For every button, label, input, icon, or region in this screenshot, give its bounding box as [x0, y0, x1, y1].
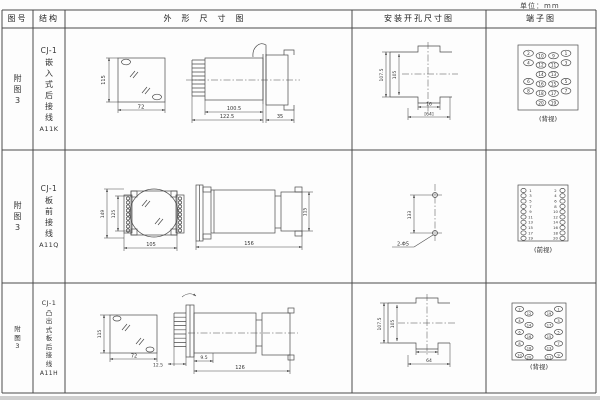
dim-side-height: 115	[303, 208, 309, 217]
dim-cutout-inner-height: 105	[390, 320, 396, 329]
dim-front-outer-height: 149	[100, 210, 106, 219]
terminal-number: 3	[557, 319, 559, 323]
terminal-number: 18	[538, 91, 544, 96]
terminal-number: 7	[565, 89, 568, 94]
terminal-number: 6	[527, 79, 530, 84]
terminal-number: 18	[553, 230, 558, 235]
terminal-number: 6	[518, 330, 521, 334]
terminal-number: 8	[527, 89, 530, 94]
row1-model: CJ-1	[41, 46, 58, 55]
terminal-number: 17	[551, 91, 557, 96]
dim-body-length: 100.5	[227, 106, 241, 112]
terminal-pin	[560, 215, 565, 219]
row2-terminal-view-label: (前视)	[534, 245, 552, 254]
header-install-dims: 安装开孔尺寸图	[352, 11, 486, 27]
row1-terminal-diagram: 2109141211314136161558181772019 (背视)	[518, 45, 578, 123]
terminal-pin	[560, 226, 565, 230]
terminal-number: 9	[529, 209, 532, 214]
dim-front-inner-height: 125	[111, 210, 117, 219]
terminal-number: 11	[528, 214, 533, 219]
terminal-pin	[560, 210, 565, 214]
dim-front-height: 115	[101, 75, 107, 85]
row2-model: CJ-1	[41, 184, 58, 193]
terminal-pin	[521, 231, 526, 235]
terminal-number: 17	[528, 230, 533, 235]
terminal-number: 2	[527, 51, 530, 56]
row3-outline-side-view: 12.5 9.5 126	[153, 294, 298, 374]
dim-cutout-inner-height: 105	[392, 71, 398, 80]
terminal-number: 10	[553, 209, 558, 214]
terminal-number: 15	[547, 335, 552, 339]
header-fig-no: 图号	[2, 11, 33, 27]
terminal-number: 7	[557, 342, 559, 346]
terminal-number: 2	[554, 188, 557, 193]
dim-side-length: 156	[244, 241, 254, 247]
dim-front-width: 72	[131, 354, 137, 360]
row1-outline-side-view: 100.5 122.5 35	[186, 44, 300, 123]
row1-code: A11K	[40, 125, 59, 133]
terminal-number: 17	[547, 323, 552, 327]
dim-cutout-outer-height: 107.5	[379, 68, 385, 81]
row3-structure-type: 凸出式板后接线	[46, 309, 53, 369]
terminal-number: 19	[547, 312, 552, 316]
row1-terminal-view-label: (背视)	[539, 114, 557, 123]
row1-fig-no-cell: 附图3	[2, 28, 33, 150]
row1-terminal-pins: 2109141211314136161558181772019	[524, 50, 571, 106]
terminal-number: 4	[518, 319, 521, 323]
dim-total-length: 126	[235, 365, 245, 371]
terminal-pin	[560, 188, 565, 192]
row1-fig-no: 附图3	[14, 73, 22, 106]
dim-rear-length: 35	[277, 114, 283, 120]
terminal-number: 14	[527, 323, 532, 327]
terminal-pin	[521, 204, 526, 208]
terminal-number: 15	[551, 82, 557, 87]
terminal-number: 14	[553, 220, 558, 225]
terminal-number: 10	[538, 53, 544, 58]
header-structure: 结构	[33, 11, 65, 27]
terminal-number: 11	[547, 355, 552, 359]
terminal-number: 5	[565, 79, 568, 84]
terminal-number: 11	[551, 63, 557, 68]
terminal-number: 20	[553, 236, 558, 241]
terminal-number: 1	[529, 188, 532, 193]
hole-spec-label: 2-Φ5	[397, 242, 409, 248]
dim-pin-length: 12.5	[153, 363, 163, 369]
terminal-pin	[560, 236, 565, 240]
dim-cutout-outer-height: 107.5	[377, 317, 383, 330]
header-terminal-diagram: 端子图	[486, 11, 596, 27]
row2-structure-type: 板前接线	[45, 195, 53, 239]
row3-model: CJ-1	[42, 299, 57, 307]
unit-label: 单位：mm	[520, 1, 596, 11]
dim-hole-pitch: 133	[407, 211, 413, 220]
terminal-pin	[521, 226, 526, 230]
row1-install-view: 107.5 105 16 [64]	[379, 42, 458, 120]
terminal-number: 16	[527, 335, 532, 339]
terminal-number: 19	[528, 236, 533, 241]
terminal-number: 3	[565, 60, 568, 65]
terminal-number: 6	[554, 199, 557, 204]
terminal-pin	[521, 236, 526, 240]
terminal-pin	[521, 188, 526, 192]
terminal-number: 14	[538, 72, 544, 77]
terminal-number: 13	[528, 220, 533, 225]
rotation-arrow	[182, 294, 196, 297]
terminal-number: 1	[557, 307, 559, 311]
hatch-mark	[155, 218, 163, 225]
row2-terminal-diagram: 1234567891011121314151617181920 (前视)	[518, 185, 568, 254]
row3-terminal-pins: 2468101214161820191715131113579	[515, 306, 562, 359]
terminal-number: 5	[529, 199, 532, 204]
terminal-pin	[560, 220, 565, 224]
hatch-mark	[136, 338, 144, 345]
row2-fig-no: 附图3	[14, 200, 22, 233]
terminal-number: 8	[518, 342, 521, 346]
terminal-number: 16	[538, 82, 544, 87]
terminal-number: 12	[527, 312, 532, 316]
terminal-pin	[560, 231, 565, 235]
drawings-layer: 115 72 100.5 122.5 35	[0, 0, 600, 400]
terminal-number: 8	[554, 204, 557, 209]
terminal-number: 12	[553, 214, 558, 219]
terminal-number: 1	[565, 51, 568, 56]
row3-fig-no: 附图3	[14, 325, 21, 351]
terminal-pin	[560, 199, 565, 203]
terminal-pin	[521, 215, 526, 219]
terminal-number: 18	[527, 346, 532, 350]
dim-cutout-width: [64]	[424, 112, 433, 118]
terminal-pin	[560, 204, 565, 208]
row2-terminal-pins: 1234567891011121314151617181920	[521, 188, 565, 241]
dim-cutout-width: 64	[426, 358, 432, 364]
manual-page: 115 72 100.5 122.5 35	[0, 0, 600, 400]
terminal-number: 19	[551, 100, 557, 105]
row3-terminal-diagram: 2468101214161820191715131113579 (背视)	[512, 303, 566, 371]
dim-notch-width: 16	[426, 102, 432, 108]
hatch-mark	[142, 87, 150, 94]
terminal-number: 3	[529, 193, 532, 198]
terminal-number: 5	[557, 330, 559, 334]
terminal-number: 10	[517, 353, 522, 357]
row1-structure-type: 嵌入式后接线	[45, 57, 53, 123]
row3-code: A11H	[40, 370, 58, 377]
row2-structure-cell: CJ-1 板前接线 A11Q	[33, 150, 65, 283]
header-outline-dims: 外形尺寸图	[65, 11, 352, 27]
row2-outline-front-view: 149 125 105	[100, 189, 184, 251]
row3-fig-no-cell: 附图3	[2, 283, 33, 393]
terminal-pin	[521, 194, 526, 198]
terminal-number: 9	[557, 353, 560, 357]
terminal-pin	[521, 220, 526, 224]
terminal-pin	[521, 199, 526, 203]
row2-outline-side-view: 115 156	[196, 185, 313, 250]
row2-code: A11Q	[39, 241, 59, 249]
terminal-number: 4	[527, 60, 530, 65]
pin-comb	[192, 60, 205, 96]
dim-front-width: 105	[146, 242, 156, 248]
row3-install-view: 107.5 105 64	[377, 294, 456, 367]
hatch-mark	[122, 324, 130, 331]
row3-terminal-view-label: (背视)	[530, 362, 548, 371]
terminal-number: 16	[553, 225, 558, 230]
table-grid	[2, 10, 596, 393]
row2-fig-no-cell: 附图3	[2, 150, 33, 283]
row3-outline-front-view: 115 72	[97, 315, 157, 362]
terminal-number: 15	[528, 225, 533, 230]
terminal-number: 7	[529, 204, 532, 209]
row2-install-view: 133 2-Φ5	[392, 184, 442, 248]
terminal-number: 20	[527, 355, 532, 359]
hatch-mark	[130, 71, 138, 78]
dim-front-height: 115	[97, 330, 103, 339]
dim-front-width: 72	[138, 105, 145, 111]
terminal-number: 13	[547, 346, 552, 350]
terminal-pin	[521, 210, 526, 214]
terminal-number: 2	[518, 307, 520, 311]
terminal-number: 13	[551, 72, 557, 77]
clamp-hook	[253, 44, 266, 57]
terminal-number: 20	[538, 100, 544, 105]
row1-structure-cell: CJ-1 嵌入式后接线 A11K	[33, 28, 65, 150]
dim-flange-depth: 9.5	[200, 355, 207, 361]
terminal-number: 4	[554, 193, 557, 198]
dim-total-length: 122.5	[220, 114, 234, 120]
pin-comb	[174, 313, 186, 347]
terminal-pin	[560, 194, 565, 198]
row1-outline-front-view: 115 72	[101, 58, 165, 113]
row3-structure-cell: CJ-1 凸出式板后接线 A11H	[33, 283, 65, 393]
hatch-mark	[142, 200, 150, 207]
terminal-number: 12	[538, 63, 544, 68]
page-edge	[0, 396, 600, 400]
terminal-number: 9	[552, 53, 555, 58]
